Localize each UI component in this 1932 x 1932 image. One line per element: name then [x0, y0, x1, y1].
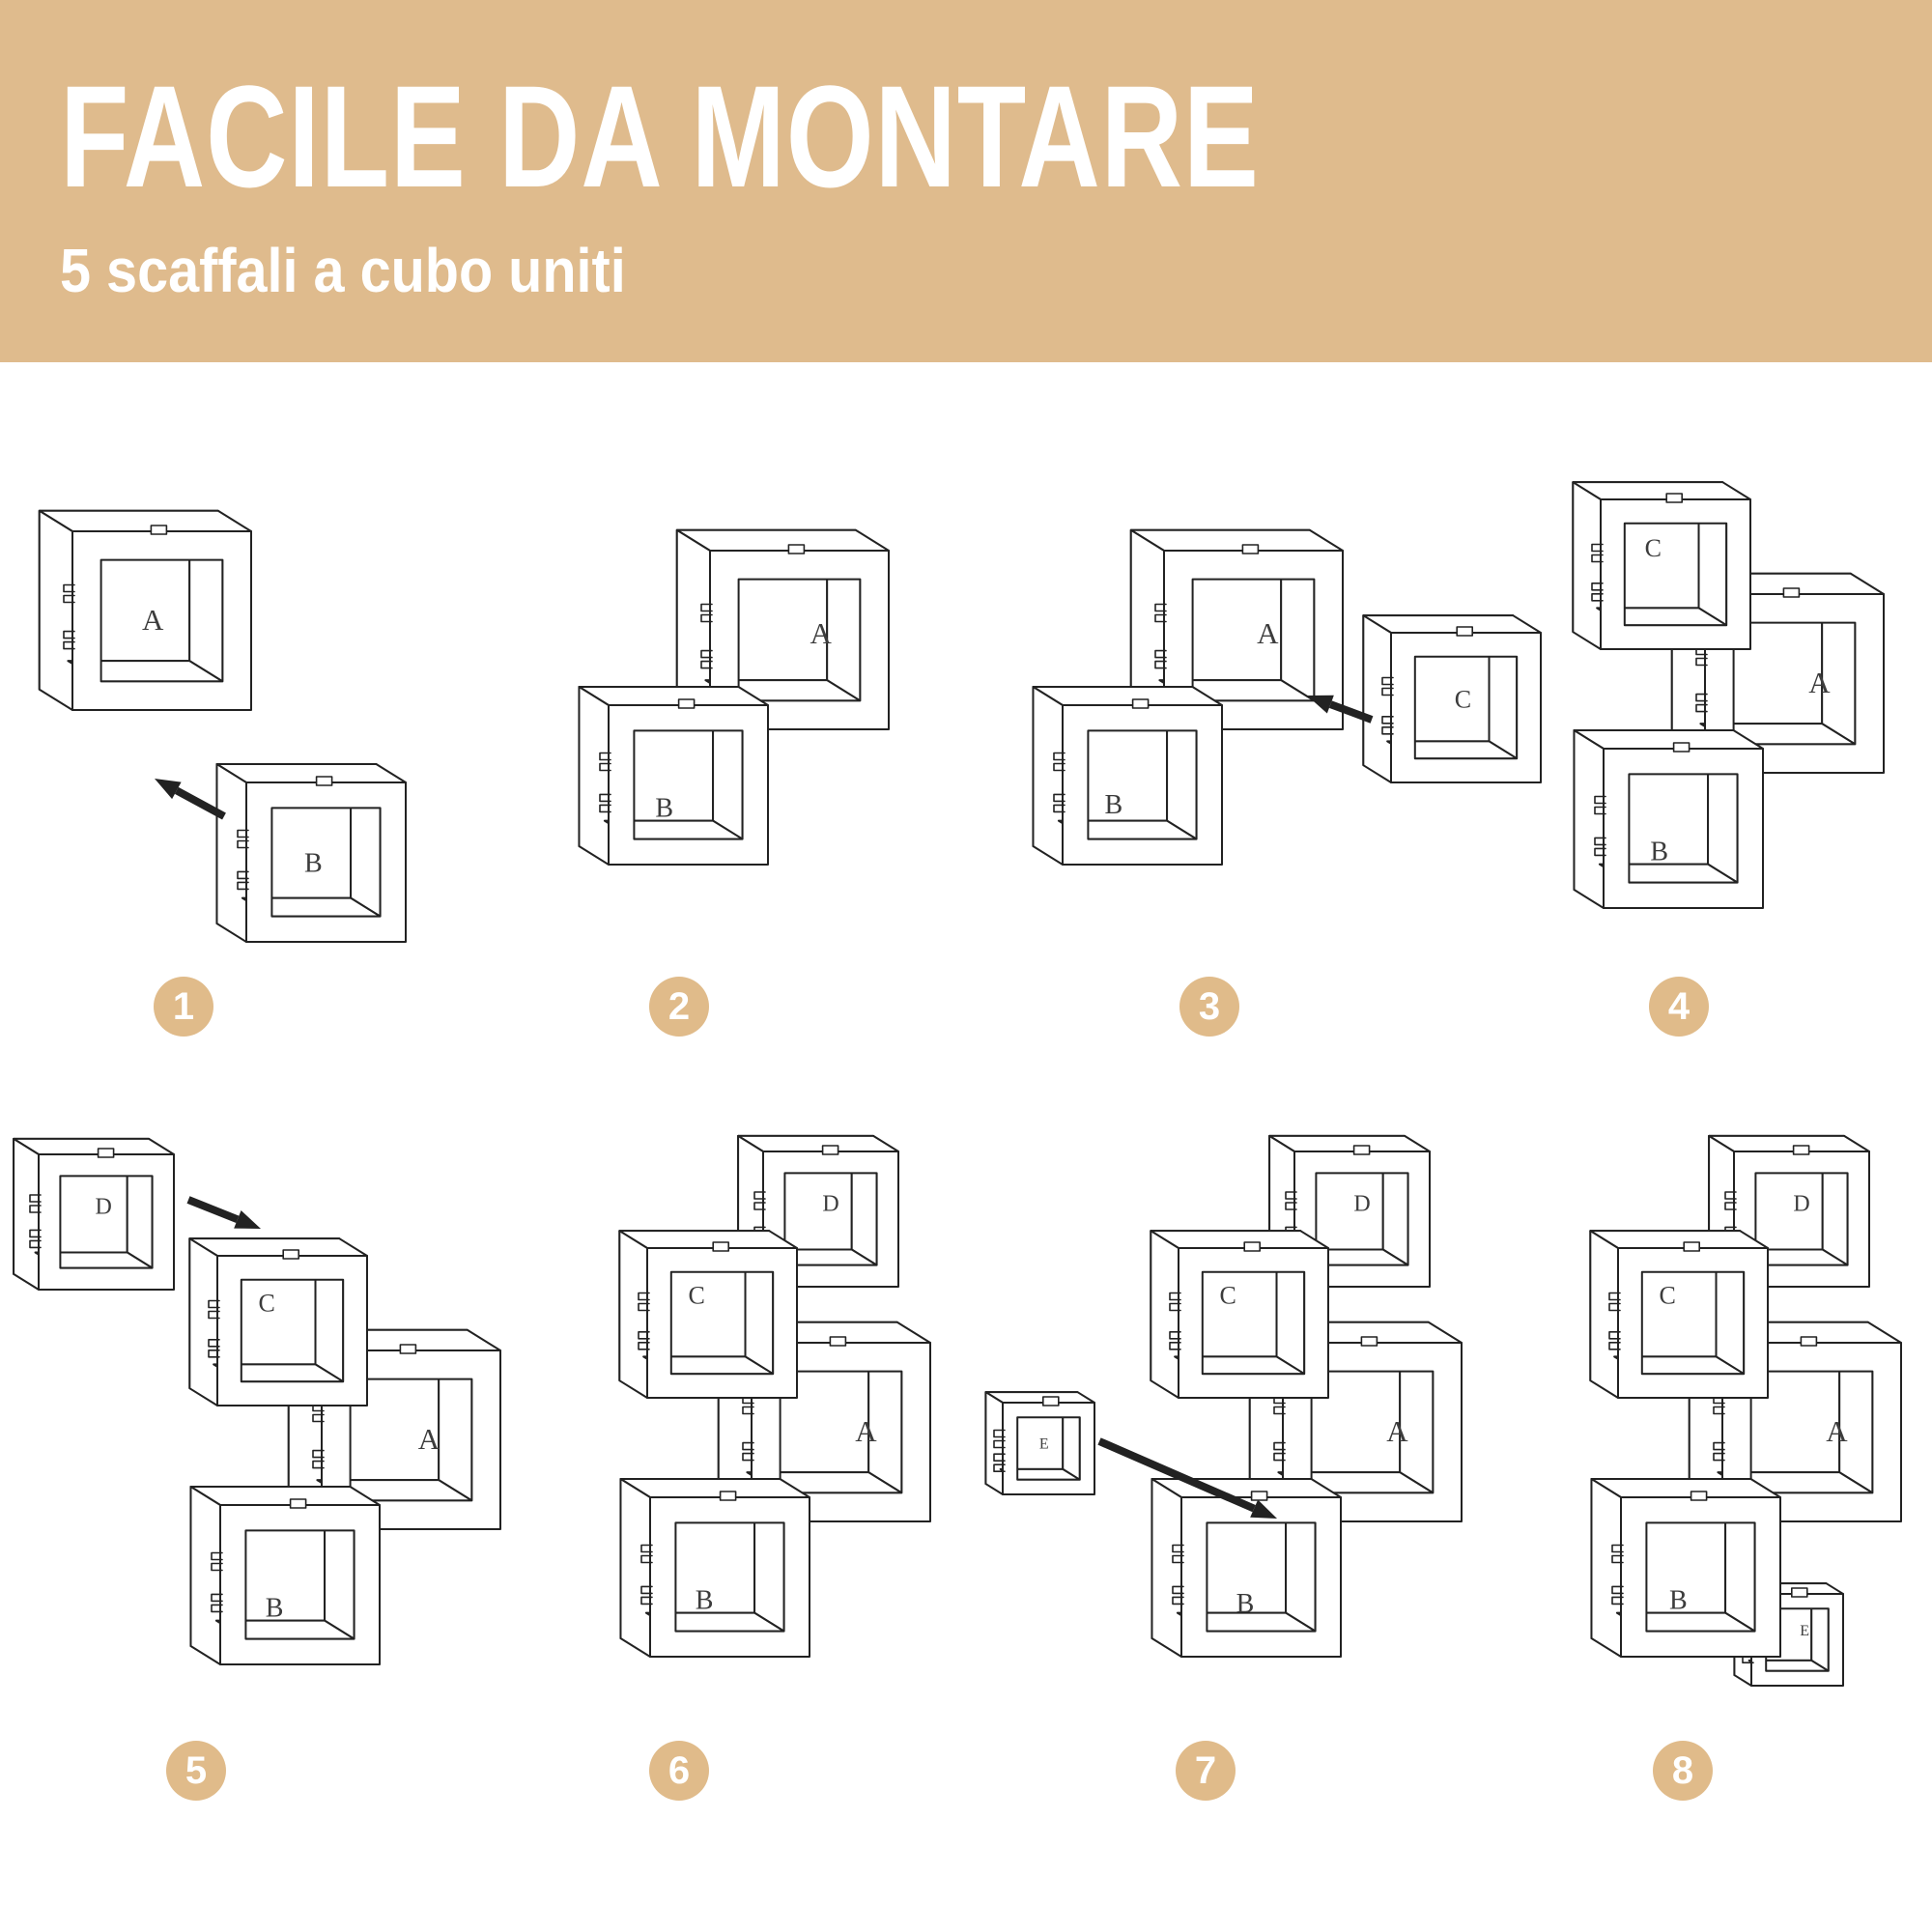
connector-tab [1354, 1146, 1370, 1154]
cube-top-face [1591, 1479, 1780, 1497]
cube-top-face [1269, 1136, 1430, 1151]
cube-top-face [14, 1139, 174, 1154]
step-number-badge: 1 [154, 977, 213, 1037]
connector-tab [788, 545, 804, 554]
connector-tab [1801, 1337, 1816, 1346]
cube-label: D [96, 1195, 112, 1220]
connector-tab [283, 1250, 298, 1259]
step-panel-8: ADCEB [1492, 1140, 1932, 1797]
step-number-badge: 8 [1653, 1741, 1713, 1801]
direction-arrow [188, 1200, 238, 1219]
connector-tab [99, 1149, 114, 1157]
step-number-badge: 7 [1176, 1741, 1236, 1801]
connector-tab [823, 1146, 838, 1154]
cube-label: D [822, 1192, 838, 1217]
connector-tab [1674, 743, 1690, 752]
cube-top-face [738, 1136, 898, 1151]
cube-label: B [655, 794, 673, 824]
connector-tab [721, 1492, 736, 1500]
step-number-badge: 6 [649, 1741, 709, 1801]
cube-top-face [189, 1238, 367, 1256]
connector-tab [1684, 1242, 1699, 1251]
connector-tab [1792, 1588, 1807, 1597]
cube-label: A [810, 616, 833, 650]
connector-tab [1457, 627, 1472, 636]
assembly-diagram-step-7: ADCBE [985, 1140, 1546, 1797]
direction-arrow-head [155, 779, 182, 799]
cube-label: B [1669, 1586, 1688, 1616]
cube-label: C [1219, 1281, 1236, 1309]
cube-label: A [418, 1422, 440, 1456]
connector-tab [1361, 1337, 1377, 1346]
cube-side-face [14, 1139, 39, 1290]
connector-tab [1666, 494, 1682, 502]
cube-top-face [985, 1392, 1094, 1403]
connector-tab [400, 1345, 415, 1353]
cube-side-face [1590, 1231, 1618, 1398]
cube-top-face [1033, 687, 1222, 705]
cube-top-face [1709, 1136, 1869, 1151]
cube-side-face [620, 1479, 650, 1657]
cube-label: B [1236, 1589, 1255, 1619]
cube-top-face [1151, 1479, 1341, 1497]
cube-side-face [1591, 1479, 1621, 1657]
cube-label: C [258, 1289, 274, 1317]
connector-tab [151, 526, 166, 534]
page-title: FACILE DA MONTARE [60, 64, 1260, 209]
direction-arrow-head [234, 1210, 261, 1229]
cube-top-face [1131, 530, 1343, 551]
cube-label: B [1650, 838, 1668, 867]
step-number-badge: 3 [1179, 977, 1239, 1037]
cube-label: A [855, 1414, 877, 1448]
cube-side-face [579, 687, 609, 865]
cube-top-face [1574, 730, 1763, 749]
step-panel-2: AB [483, 415, 956, 1034]
connector-tab [1043, 1397, 1059, 1406]
page-subtitle: 5 scaffali a cubo uniti [60, 240, 626, 301]
cube-top-face [619, 1231, 797, 1248]
connector-tab [1133, 699, 1149, 708]
cube-label: C [1455, 686, 1471, 714]
cube-side-face [1151, 1231, 1179, 1398]
connector-tab [1252, 1492, 1267, 1500]
step-panel-1: AB [19, 415, 493, 1034]
assembly-diagram-step-2: AB [483, 415, 956, 1034]
step-panel-5: ACBD [14, 1140, 502, 1797]
connector-tab [1783, 588, 1799, 597]
step-panel-4: ACB [1507, 396, 1932, 1014]
assembly-diagram-step-1: AB [19, 415, 493, 1034]
cube-top-face [579, 687, 768, 705]
cube-side-face [1033, 687, 1063, 865]
connector-tab [291, 1499, 306, 1508]
cube-label: B [696, 1586, 714, 1616]
cube-label: C [1645, 534, 1662, 562]
cube-label: C [688, 1281, 704, 1309]
step-panel-7: ADCBE [985, 1140, 1546, 1797]
step-number-badge: 2 [649, 977, 709, 1037]
cube-side-face [1573, 482, 1601, 649]
cube-top-face [1151, 1231, 1328, 1248]
cube-label: B [1104, 790, 1122, 820]
cube-label: A [142, 603, 164, 637]
cube-label: E [1039, 1436, 1049, 1453]
cube-top-face [1590, 1231, 1768, 1248]
cube-side-face [619, 1231, 647, 1398]
assembly-diagram-step-4: ACB [1507, 396, 1932, 1014]
cube-top-face [620, 1479, 810, 1497]
cube-label: D [1353, 1192, 1370, 1217]
connector-tab [1242, 545, 1258, 554]
header-banner: FACILE DA MONTARE 5 scaffali a cubo unit… [0, 0, 1932, 362]
cube-side-face [216, 764, 246, 942]
connector-tab [317, 777, 332, 785]
step-number-badge: 5 [166, 1741, 226, 1801]
connector-tab [679, 699, 695, 708]
cube-top-face [1573, 482, 1750, 499]
cube-side-face [189, 1238, 217, 1406]
cube-label: A [1386, 1414, 1408, 1448]
cube-label: B [304, 848, 323, 878]
assembly-diagram-step-3: ABC [985, 415, 1555, 1034]
cube-label: C [1659, 1281, 1675, 1309]
connector-tab [1794, 1146, 1809, 1154]
cube-label: A [1808, 666, 1831, 699]
cube-label: D [1793, 1192, 1809, 1217]
cube-label: A [1257, 616, 1279, 650]
assembly-diagram-step-6: ADCB [541, 1140, 995, 1797]
assembly-diagram-step-8: ADCEB [1492, 1140, 1932, 1797]
cube-top-face [216, 764, 406, 782]
connector-tab [1244, 1242, 1260, 1251]
infographic-canvas: FACILE DA MONTARE 5 scaffali a cubo unit… [0, 0, 1932, 1932]
cube-top-face [677, 530, 889, 551]
connector-tab [1691, 1492, 1707, 1500]
cube-side-face [1151, 1479, 1181, 1657]
cube-side-face [1363, 615, 1391, 782]
cube-top-face [190, 1487, 380, 1505]
cube-side-face [1574, 730, 1604, 908]
cube-top-face [40, 511, 251, 531]
connector-tab [713, 1242, 728, 1251]
cube-label: A [1826, 1414, 1848, 1448]
cube-side-face [40, 511, 72, 710]
cube-label: B [266, 1594, 284, 1624]
step-number-badge: 4 [1649, 977, 1709, 1037]
connector-tab [830, 1337, 845, 1346]
step-panel-3: ABC [985, 415, 1555, 1034]
assembly-diagram-step-5: ACBD [14, 1140, 502, 1797]
step-panel-6: ADCB [541, 1140, 995, 1797]
cube-side-face [190, 1487, 220, 1664]
cube-label: E [1800, 1623, 1809, 1639]
